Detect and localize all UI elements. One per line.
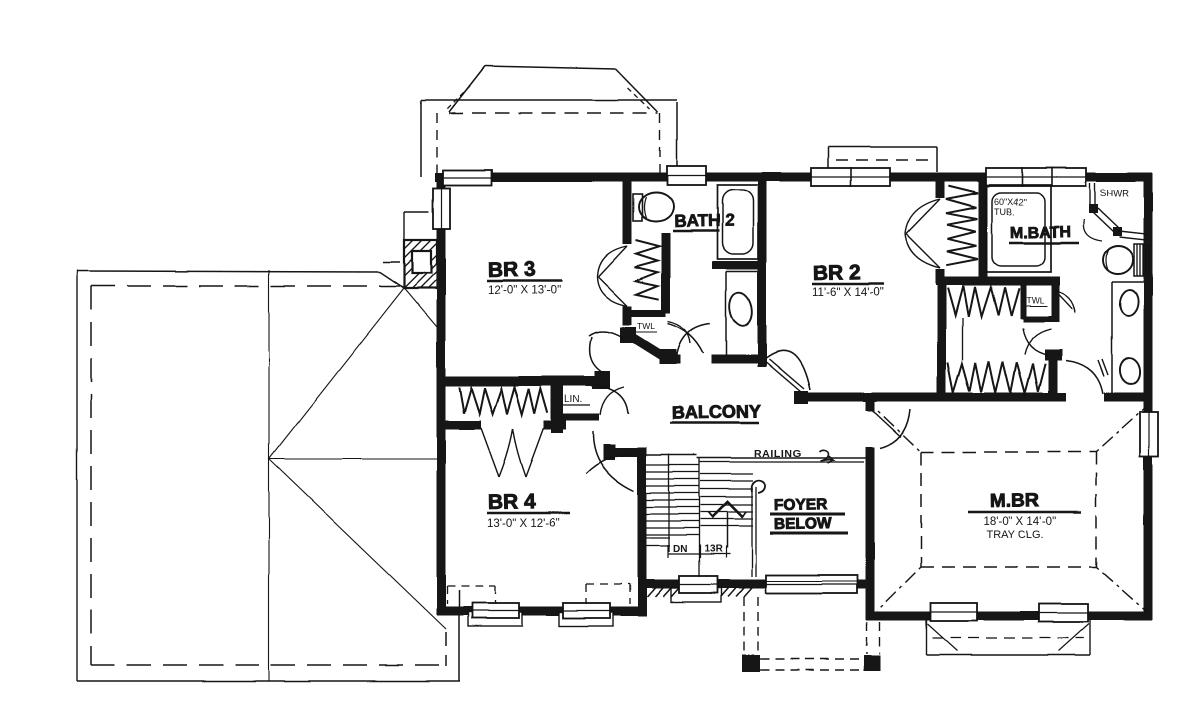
svg-text:M.BR: M.BR — [990, 490, 1039, 512]
svg-text:LIN.: LIN. — [564, 394, 582, 405]
svg-text:BR 3: BR 3 — [488, 258, 536, 282]
svg-text:BR 2: BR 2 — [813, 261, 861, 285]
svg-text:12'-0" X 13'-0": 12'-0" X 13'-0" — [488, 285, 561, 297]
svg-text:BALCONY: BALCONY — [672, 401, 761, 423]
svg-text:TUB.: TUB. — [994, 207, 1015, 217]
svg-text:13R: 13R — [704, 544, 723, 555]
svg-text:FOYER: FOYER — [774, 496, 828, 514]
svg-text:60"X42": 60"X42" — [994, 197, 1026, 207]
svg-text:11'-6" X 14'-0": 11'-6" X 14'-0" — [812, 287, 884, 299]
svg-text:TWL: TWL — [1026, 295, 1044, 305]
svg-text:SHWR: SHWR — [1100, 188, 1129, 199]
svg-text:13'-0" X 12'-6": 13'-0" X 12'-6" — [487, 518, 560, 530]
svg-text:RAILING: RAILING — [754, 448, 801, 460]
svg-text:TRAY CLG.: TRAY CLG. — [986, 529, 1043, 541]
svg-text:TWL: TWL — [637, 321, 655, 331]
svg-text:18'-0" X 14'-0": 18'-0" X 14'-0" — [983, 516, 1056, 528]
svg-text:DN: DN — [673, 544, 687, 555]
svg-text:BR 4: BR 4 — [488, 490, 537, 514]
svg-text:BATH 2: BATH 2 — [674, 211, 734, 231]
svg-text:BELOW: BELOW — [774, 515, 832, 533]
svg-text:M.BATH: M.BATH — [1010, 224, 1071, 242]
